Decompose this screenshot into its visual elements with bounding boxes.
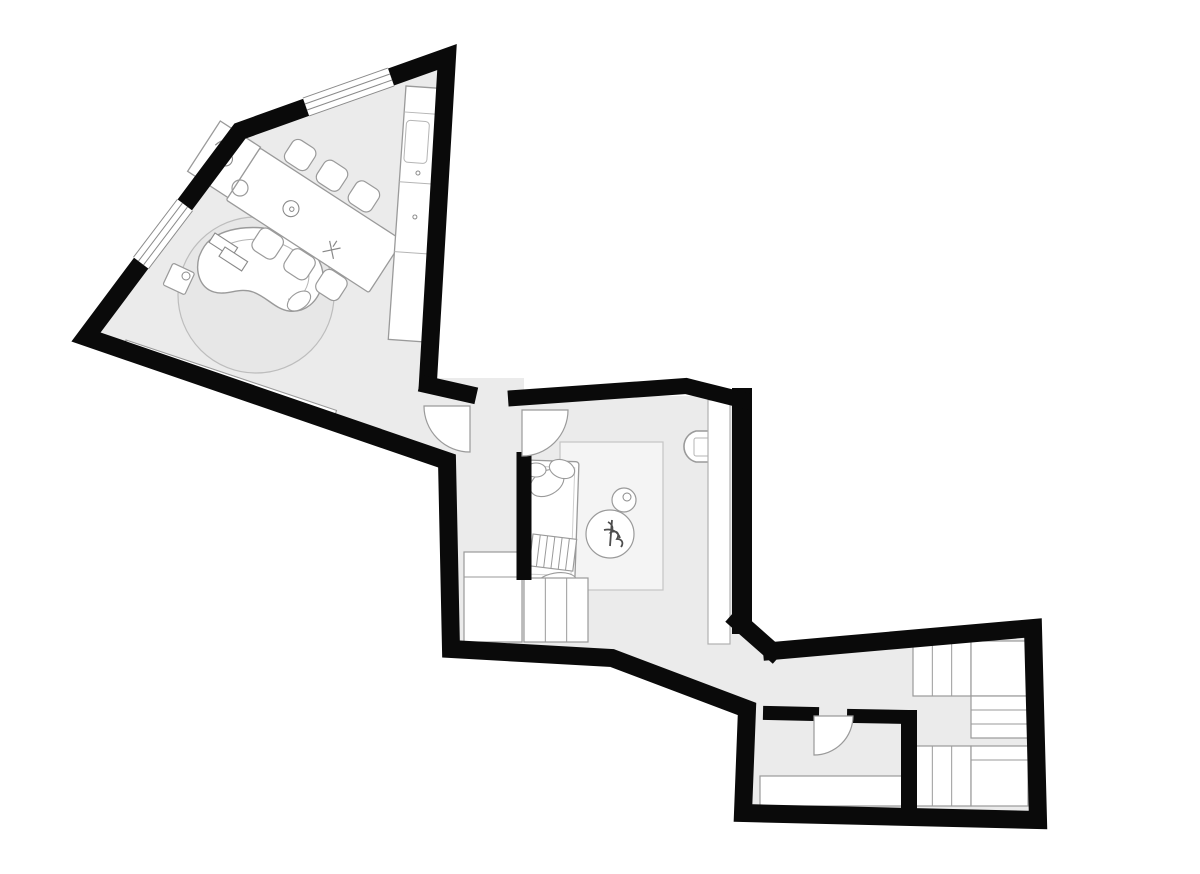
striped-blanket	[529, 534, 577, 571]
wall-hall-stub	[428, 385, 468, 394]
coffee-table-round	[586, 510, 634, 558]
wall-bedroom-top	[516, 386, 742, 400]
floor-plan-canvas	[0, 0, 1200, 874]
wc-counter	[760, 776, 902, 806]
cabinet-bottom	[971, 746, 1028, 806]
console-shelf	[708, 400, 730, 644]
wardrobe-top	[913, 641, 971, 696]
shelf-stack	[971, 696, 1028, 738]
closet-left	[464, 552, 522, 642]
cabinet-top	[971, 641, 1028, 696]
wall-wc-top-left	[770, 713, 812, 714]
closet-middle	[524, 578, 588, 642]
wall-wc-top-right	[854, 716, 908, 717]
floor-plan-page	[0, 0, 1200, 874]
wardrobe-bottom	[913, 746, 971, 806]
